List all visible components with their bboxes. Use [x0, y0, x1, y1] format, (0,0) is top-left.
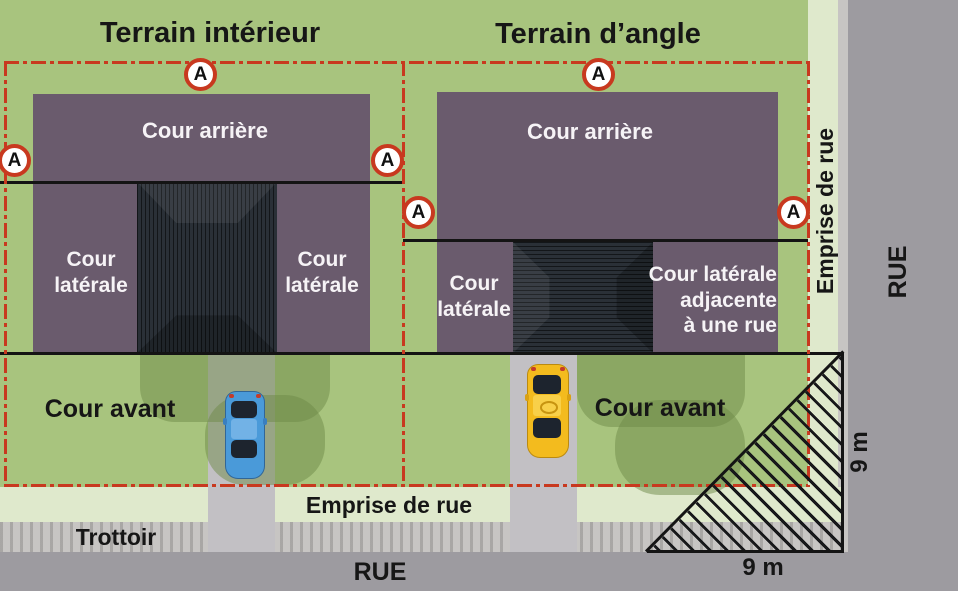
car-taillight: [256, 394, 261, 398]
car-taillight: [531, 367, 536, 371]
marker-letter: A: [787, 202, 801, 224]
label-right-of-way-bottom: Emprise de rue: [289, 491, 489, 519]
car-blue: [225, 391, 265, 479]
car-mirror: [223, 418, 227, 425]
building-roof-left-lot: [137, 182, 277, 353]
label-front-yard-right-lot: Cour avant: [560, 393, 760, 424]
label-rear-yard-right-lot: Cour arrière: [440, 119, 740, 146]
zoning-diagram: Terrain intérieur Terrain d’angle Cour a…: [0, 0, 958, 591]
title-corner-lot: Terrain d’angle: [448, 17, 748, 52]
label-sidewalk: Trottoir: [16, 523, 216, 551]
car-roof: [533, 395, 561, 416]
car-rear-window: [533, 375, 561, 394]
label-side-yard-left-outer: Cour latérale: [31, 247, 151, 298]
lot-boundary-left: [4, 61, 7, 485]
car-windshield: [533, 418, 561, 438]
lot-boundary-middle: [402, 61, 405, 485]
marker-a-right-left-lot: A: [371, 144, 404, 177]
car-taillight: [560, 367, 565, 371]
label-side-yard-right-inner: Cour latérale: [414, 271, 534, 322]
label-right-of-way-side: Emprise de rue: [811, 111, 837, 311]
car-rear-window: [231, 401, 257, 418]
rear-yard-line-right-lot: [403, 239, 808, 242]
marker-a-right-right-lot: A: [777, 196, 810, 229]
corner-triangle-right-edge: [841, 354, 844, 553]
label-rear-yard-left-lot: Cour arrière: [55, 118, 355, 145]
car-sunroof: [540, 401, 558, 414]
car-mirror: [263, 418, 267, 425]
car-yellow: [527, 364, 569, 458]
car-taillight: [229, 394, 234, 398]
car-roof: [231, 419, 257, 439]
dimension-corner-height: 9 m: [845, 412, 871, 492]
marker-a-left-left-lot: A: [0, 144, 31, 177]
marker-letter: A: [8, 150, 22, 172]
rear-yard-line-left-lot: [0, 181, 403, 184]
lot-boundary-top: [4, 61, 808, 64]
car-windshield: [231, 440, 257, 458]
marker-letter: A: [381, 150, 395, 172]
label-side-yard-left-inner: Cour latérale: [262, 247, 382, 298]
marker-letter: A: [194, 64, 208, 86]
lot-boundary-bottom: [4, 484, 808, 487]
marker-a-top-right-lot: A: [582, 58, 615, 91]
marker-a-top-left-lot: A: [184, 58, 217, 91]
label-street-side: RUE: [883, 232, 911, 312]
tree-shadow: [205, 395, 325, 485]
dimension-corner-width: 9 m: [713, 553, 813, 582]
car-mirror: [525, 394, 529, 401]
label-front-yard-left-lot: Cour avant: [10, 394, 210, 425]
marker-a-left-right-lot: A: [402, 196, 435, 229]
title-interior-lot: Terrain intérieur: [60, 16, 360, 51]
label-street-bottom: RUE: [280, 557, 480, 588]
car-mirror: [567, 394, 571, 401]
marker-letter: A: [592, 64, 606, 86]
label-side-yard-adjacent-street: Cour latérale adjacente à une rue: [577, 262, 777, 339]
marker-letter: A: [412, 202, 426, 224]
front-yard-line: [0, 352, 844, 355]
